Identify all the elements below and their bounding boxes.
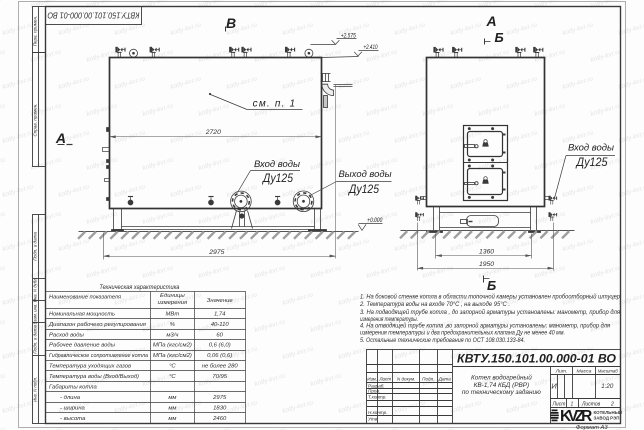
svg-text:Подп. и дата: Подп. и дата xyxy=(33,324,38,353)
svg-text:Лист: Лист xyxy=(552,401,566,407)
svg-text:Разраб.: Разраб. xyxy=(368,383,385,388)
svg-text:Рабочее давление воды: Рабочее давление воды xyxy=(49,343,116,349)
svg-text:КОТЕЛЬНЫЙ: КОТЕЛЬНЫЙ xyxy=(594,410,623,415)
svg-text:Котел водогрейный: Котел водогрейный xyxy=(471,373,532,381)
svg-text:Пров.: Пров. xyxy=(368,389,380,394)
svg-text:4. На отводящей трубе котла ,в: 4. На отводящей трубе котла ,во запорной… xyxy=(360,323,611,330)
svg-text:см. п. 1: см. п. 1 xyxy=(253,99,297,110)
svg-text:КВТУ.150.101.00.000-01 ВО: КВТУ.150.101.00.000-01 ВО xyxy=(457,351,616,365)
svg-text:0,6 (6,0): 0,6 (6,0) xyxy=(209,343,231,349)
svg-text:- высота: - высота xyxy=(60,416,86,422)
svg-text:Изм.: Изм. xyxy=(367,377,377,382)
svg-text:Формат А3: Формат А3 xyxy=(576,425,608,430)
svg-text:Лист: Лист xyxy=(378,377,391,382)
svg-text:+0.000: +0.000 xyxy=(367,218,383,224)
svg-text:Значение: Значение xyxy=(207,298,234,304)
svg-text:Температура воды (Вход/Выход): Температура воды (Вход/Выход) xyxy=(49,374,139,380)
svg-text:5. Остальные технические требо: 5. Остальные технические требования по О… xyxy=(360,337,525,344)
svg-text:Гидравлическое сопротивление к: Гидравлическое сопротивление котла xyxy=(49,353,149,359)
svg-text:Справ. примен.: Справ. примен. xyxy=(33,103,38,136)
svg-text:+2.410: +2.410 xyxy=(364,45,378,51)
svg-text:Ду125: Ду125 xyxy=(575,157,608,169)
svg-text:не более 280: не более 280 xyxy=(202,364,239,370)
svg-text:Масса: Масса xyxy=(577,369,592,375)
svg-text:%: % xyxy=(170,322,175,328)
svg-text:КВ-1,74 КБД (РВР): КВ-1,74 КБД (РВР) xyxy=(474,382,529,389)
svg-text:1,74: 1,74 xyxy=(214,311,226,317)
svg-text:измерения температуры и два пр: измерения температуры и два предохраните… xyxy=(360,330,565,337)
svg-text:Диапазон рабочего регулировани: Диапазон рабочего регулирования xyxy=(48,322,147,328)
svg-text:1: 1 xyxy=(571,401,574,407)
svg-text:°С: °С xyxy=(169,374,176,380)
svg-text:А: А xyxy=(55,130,66,146)
svg-text:Листов: Листов xyxy=(581,401,601,407)
svg-text:Инв. N подл.: Инв. N подл. xyxy=(33,377,38,402)
svg-text:МПа (кгс/см2): МПа (кгс/см2) xyxy=(153,343,192,349)
svg-text:ЗАВОД РЭП: ЗАВОД РЭП xyxy=(594,416,620,421)
svg-text:Вход воды: Вход воды xyxy=(568,143,614,153)
svg-text:А: А xyxy=(486,13,497,29)
svg-text:Дата: Дата xyxy=(438,377,452,382)
svg-text:2975: 2975 xyxy=(212,395,227,401)
svg-text:Б: Б xyxy=(487,278,496,293)
svg-text:м3/ч: м3/ч xyxy=(166,332,178,338)
svg-text:Лит.: Лит. xyxy=(555,369,567,375)
svg-text:Вход воды: Вход воды xyxy=(254,159,300,169)
svg-text:В: В xyxy=(226,15,236,31)
svg-text:Масштаб: Масштаб xyxy=(598,369,618,375)
svg-text:Подп.: Подп. xyxy=(422,377,434,382)
svg-text:Подп. и дата: Подп. и дата xyxy=(33,232,38,261)
svg-text:Единицы: Единицы xyxy=(160,293,185,299)
svg-text:Ду125: Ду125 xyxy=(347,184,379,196)
svg-text:2975: 2975 xyxy=(208,249,224,256)
svg-text:Т.контр.: Т.контр. xyxy=(368,395,387,400)
svg-text:2460: 2460 xyxy=(212,416,227,422)
svg-text:КВТУ.150.101.00.000-01 ВО: КВТУ.150.101.00.000-01 ВО xyxy=(47,11,140,20)
svg-text:измерения: измерения xyxy=(158,300,188,306)
svg-text:N докум.: N докум. xyxy=(397,377,416,382)
svg-text:Перв. примен.: Перв. примен. xyxy=(33,16,38,47)
svg-text:мм: мм xyxy=(168,405,176,411)
svg-text:Инв. N дубл.: Инв. N дубл. xyxy=(33,277,38,302)
svg-text:3. На подводящей трубе котла ,: 3. На подводящей трубе котла , до запорн… xyxy=(360,309,621,316)
svg-text:Утв.: Утв. xyxy=(368,416,378,421)
svg-text:- длина: - длина xyxy=(60,395,81,401)
svg-text:2: 2 xyxy=(610,401,614,407)
svg-text:МПа (кгс/см2): МПа (кгс/см2) xyxy=(153,353,192,359)
svg-text:Б: Б xyxy=(495,30,504,45)
svg-text:60: 60 xyxy=(216,332,223,338)
svg-text:по техническому заданию: по техническому заданию xyxy=(462,388,541,396)
svg-text:2. Температура воды на входе: 2. Температура воды на входе 70°С , на в… xyxy=(359,301,510,308)
svg-text:Расход воды: Расход воды xyxy=(49,332,85,338)
svg-text:1. На боковой стенке котла в о: 1. На боковой стенке котла в области топ… xyxy=(360,293,621,300)
svg-text:KVZR: KVZR xyxy=(560,408,592,425)
svg-text:И: И xyxy=(551,382,557,391)
svg-text:°С: °С xyxy=(169,364,176,370)
svg-text:Температура уходящих газов: Температура уходящих газов xyxy=(49,364,131,370)
svg-text:мм: мм xyxy=(168,395,176,401)
svg-text:2720: 2720 xyxy=(205,129,221,136)
svg-text:Ду125: Ду125 xyxy=(261,173,293,185)
svg-text:40-110: 40-110 xyxy=(211,322,230,328)
svg-text:1950: 1950 xyxy=(479,261,494,268)
svg-text:1:20: 1:20 xyxy=(601,383,614,390)
svg-text:Н.контр.: Н.контр. xyxy=(368,410,387,415)
svg-text:Габариты котла: Габариты котла xyxy=(49,385,97,391)
svg-text:Взам. инв. N: Взам. инв. N xyxy=(33,298,38,324)
svg-text:0,06 (0,6): 0,06 (0,6) xyxy=(207,353,232,359)
svg-text:мм: мм xyxy=(168,416,176,422)
svg-text:70/95: 70/95 xyxy=(212,374,227,380)
svg-text:Техническая характеристика: Техническая характеристика xyxy=(99,284,179,291)
svg-text:Выход воды: Выход воды xyxy=(339,169,392,179)
svg-text:1360: 1360 xyxy=(479,248,494,255)
svg-text:1830: 1830 xyxy=(213,405,227,411)
svg-text:- ширина: - ширина xyxy=(60,405,86,411)
svg-text:Номинальная мощность: Номинальная мощность xyxy=(49,311,115,317)
svg-text:МВт: МВт xyxy=(166,311,180,317)
svg-text:+2.575: +2.575 xyxy=(341,34,357,40)
svg-text:Наименование показателя: Наименование показателя xyxy=(49,295,122,301)
